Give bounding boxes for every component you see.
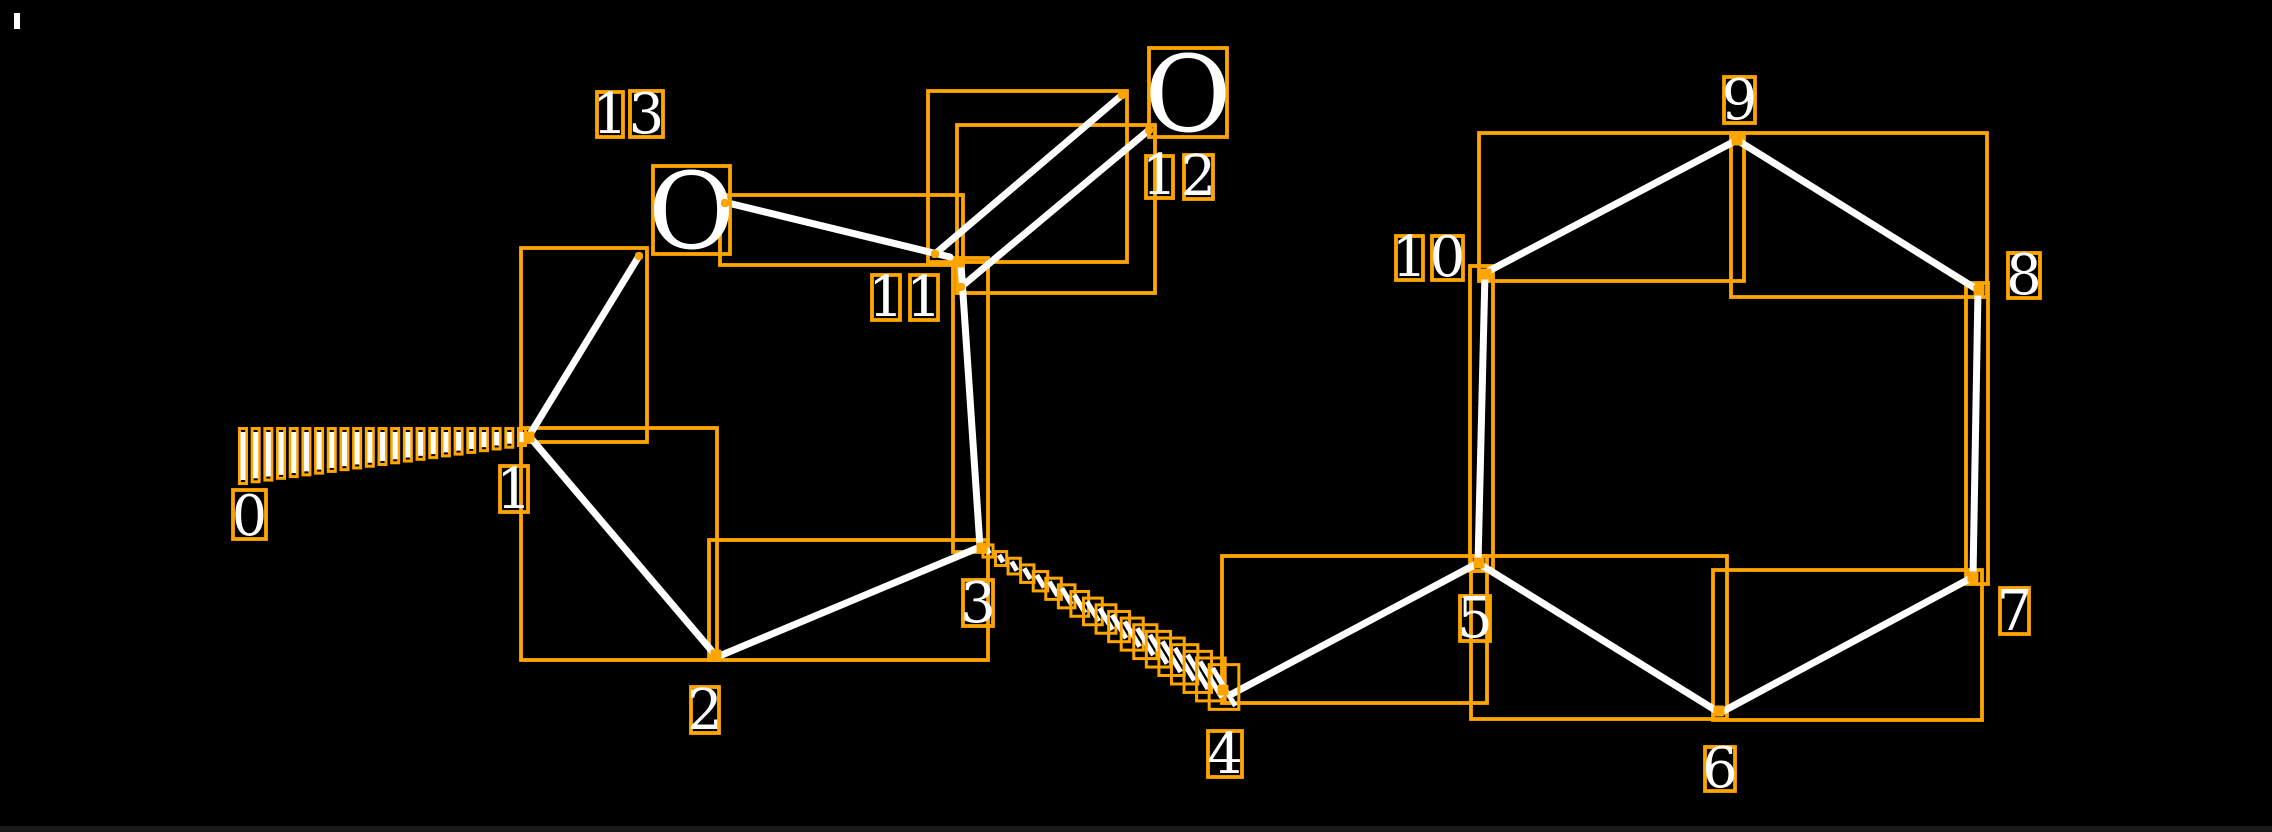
atom-label-10-d1: 1 [1392,225,1428,290]
atom-label-6: 6 [1702,736,1738,801]
bond-7-8 [1973,290,1978,577]
atom-label-11-d1: 1 [868,265,904,330]
atom-label-12-d1: 1 [1142,143,1178,208]
atom-label-5: 5 [1457,586,1493,651]
junction-marker-9 [1732,135,1743,146]
junction-marker-10 [1481,269,1492,280]
junction-marker-11 [954,257,965,268]
atom-label-3: 3 [960,571,996,636]
junction-marker-3 [977,543,988,554]
atom-label-13-d1: 1 [592,82,628,147]
atom-label-2: 2 [687,678,723,743]
artifact-speck [14,13,20,29]
atom-label-12-d2: 2 [1181,144,1217,209]
junction-marker-5 [1474,558,1485,569]
molecule-figure: OO012345678910111213 [0,0,2272,832]
junction-marker-1 [524,432,535,443]
oxygen-12-glyph: O [1145,33,1232,156]
endpoint-dot-11-a [931,250,939,258]
atom-label-7: 7 [1997,579,2033,644]
footer-bar [0,826,2272,832]
junction-marker-2 [711,650,722,661]
atom-label-0: 0 [232,484,268,549]
atom-label-1: 1 [496,457,532,522]
junction-marker-6 [1714,706,1725,717]
atom-label-4: 4 [1207,722,1243,787]
atom-label-9: 9 [1722,68,1758,133]
atom-label-13-d2: 3 [629,82,665,147]
endpoint-dot-o12-a [1118,91,1126,99]
atom-label-8: 8 [2006,243,2042,308]
molecule-annotation-canvas: OO012345678910111213 [0,0,2272,832]
oxygen-13-glyph: O [648,150,735,273]
junction-marker-4 [1218,685,1229,696]
endpoint-dot-o12-b [1145,126,1153,134]
atom-label-10-d2: 0 [1430,225,1466,290]
endpoint-dot-o13-left [635,252,643,260]
endpoint-dot-o13-right [721,199,729,207]
endpoint-dot-11-b [957,283,965,291]
junction-marker-7 [1968,572,1979,583]
atom-label-11-d2: 1 [906,265,942,330]
junction-marker-8 [1974,285,1985,296]
